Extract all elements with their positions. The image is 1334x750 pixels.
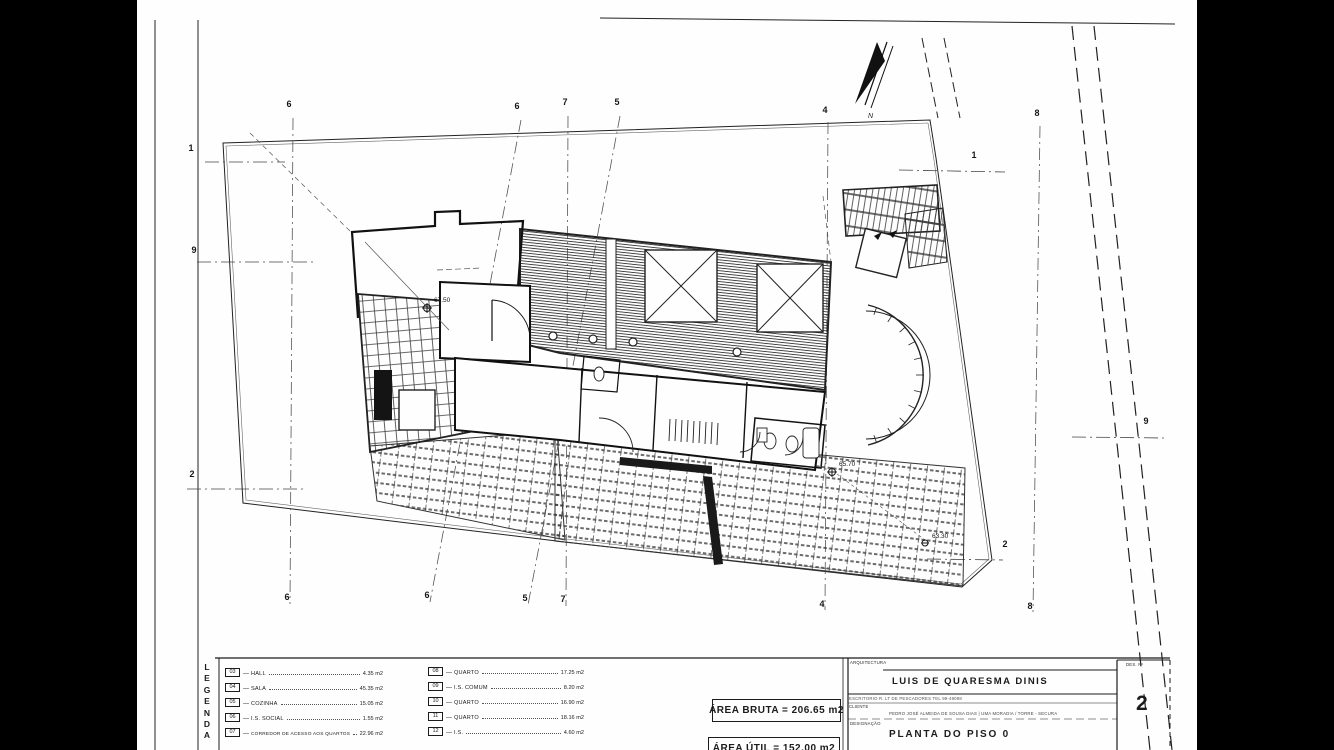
legend-leader (482, 672, 558, 674)
client-label: CLIENTE (849, 704, 869, 709)
drawing-label: DESIGNAÇÃO (850, 721, 881, 726)
legend-item: 05 — COZINHA 15.05 m2 (225, 698, 383, 708)
discipline-label: ARQUITECTURA (850, 660, 886, 665)
grid-marker-4: 4 (822, 105, 827, 115)
scanned-drawing-sheet: N (0, 0, 1334, 750)
level-marker-value: 63.30 (932, 533, 948, 540)
legend-title: L E G E N D A (199, 662, 215, 742)
grid-marker-2: 2 (1002, 539, 1007, 549)
grid-marker-8: 8 (1034, 108, 1039, 118)
legend-item: 11 — QUARTO 18.16 m2 (428, 712, 584, 722)
legend-item: 09 — I.S. COMUM 8.20 m2 (428, 682, 584, 692)
entry-court (843, 185, 947, 277)
north-label: N (868, 113, 874, 120)
legend-item-label: QUARTO (454, 670, 479, 676)
legend-separator: — (446, 715, 452, 721)
legend-item-label: HALL (251, 671, 266, 677)
office-line: ESCRITORIO R. LT DE PESCADORES TEL 99-49… (849, 696, 962, 701)
north-arrow-icon: N (855, 42, 893, 120)
legend-item-number: 12 (428, 727, 443, 736)
client-line: PEDRO JOSÉ ALMEIDA DE SOUSA DIAS | UMA M… (889, 711, 1057, 716)
grid-marker-9: 9 (191, 245, 196, 255)
legend-leader (269, 688, 357, 690)
legend-item-label: I.S. (454, 730, 463, 736)
legend-item-number: 09 (428, 682, 443, 691)
sheet-number: 2 (1136, 692, 1148, 716)
legend-leader (287, 718, 360, 720)
legend-leader (466, 732, 561, 734)
grid-marker-1: 1 (971, 150, 976, 160)
legend-item: 07 — CORREDOR DE ACESSO AOS QUARTOS 22.9… (225, 728, 383, 738)
legend-item-area: 18.16 m2 (561, 715, 584, 721)
legend-item: 12 — I.S. 4.60 m2 (428, 727, 584, 737)
grid-marker-2: 2 (189, 469, 194, 479)
legend-letter: A (199, 730, 215, 741)
legend-letter: D (199, 719, 215, 730)
drawing-title: PLANTA DO PISO 0 (889, 729, 1010, 740)
legend-item-label: COZINHA (251, 701, 278, 707)
legend-item-area: 4.60 m2 (564, 730, 584, 736)
legend-item-number: 03 (225, 668, 240, 677)
area-util-box: ÁREA ÚTIL = 152.00 m2 (708, 737, 840, 750)
legend-item-number: 08 (428, 667, 443, 676)
legend-letter: E (199, 673, 215, 684)
legend-item-label: I.S. SOCIAL (251, 716, 284, 722)
legend-letter: L (199, 662, 215, 673)
legend-leader (269, 673, 360, 675)
legend-item-label: I.S. COMUM (454, 685, 488, 691)
legend-item: 03 — HALL 4.35 m2 (225, 668, 383, 678)
legend-letter: N (199, 708, 215, 719)
legend-leader (482, 717, 558, 719)
grid-marker-5: 5 (522, 593, 527, 603)
legend-separator: — (243, 701, 249, 707)
legend-item-area: 4.35 m2 (363, 671, 383, 677)
grid-marker-7: 7 (560, 594, 565, 604)
legend-item-number: 06 (225, 713, 240, 722)
legend-leader (353, 733, 357, 735)
legend-separator: — (446, 700, 452, 706)
grid-marker-4: 4 (819, 599, 824, 609)
terrace-paving (370, 431, 965, 586)
legend-separator: — (243, 671, 249, 677)
road-lines (922, 26, 1172, 750)
legend-item-area: 8.20 m2 (564, 685, 584, 691)
grid-marker-5: 5 (614, 97, 619, 107)
legend-letter: G (199, 685, 215, 696)
grid-marker-1: 1 (188, 143, 193, 153)
legend-leader (482, 702, 558, 704)
legend-item-area: 15.05 m2 (360, 701, 383, 707)
legend-item-area: 45.35 m2 (360, 686, 383, 692)
grid-marker-9: 9 (1143, 416, 1148, 426)
legend-leader (281, 703, 357, 705)
legend-separator: — (243, 686, 249, 692)
legend-item-number: 04 (225, 683, 240, 692)
grid-marker-6: 6 (514, 101, 519, 111)
legend-item-area: 1.55 m2 (363, 716, 383, 722)
legend-separator: — (446, 670, 452, 676)
legend-item: 10 — QUARTO 16.90 m2 (428, 697, 584, 707)
legend-item-area: 22.96 m2 (360, 731, 383, 737)
legend-item-number: 11 (428, 712, 443, 721)
legend-item-area: 16.90 m2 (561, 700, 584, 706)
legend-letter: E (199, 696, 215, 707)
grid-marker-6: 6 (286, 99, 291, 109)
legend-item-label: CORREDOR DE ACESSO AOS QUARTOS (251, 732, 350, 737)
grid-marker-6: 6 (424, 590, 429, 600)
curved-wall (866, 305, 930, 445)
legend-separator: — (446, 730, 452, 736)
legend-item-label: SALA (251, 686, 266, 692)
legend-item-label: QUARTO (454, 715, 479, 721)
grid-marker-7: 7 (562, 97, 567, 107)
sheet-number-label: DES. Nº (1126, 662, 1143, 667)
level-marker-value: 65.70 (839, 461, 855, 468)
architect-name: LUIS DE QUARESMA DINIS (892, 676, 1048, 687)
legend-separator: — (243, 731, 249, 737)
legend-item-area: 17.25 m2 (561, 670, 584, 676)
grid-marker-8: 8 (1027, 601, 1032, 611)
level-marker-value: 67.50 (434, 297, 450, 304)
legend-item-number: 10 (428, 697, 443, 706)
legend-item-number: 05 (225, 698, 240, 707)
drawing-paper: N (137, 0, 1197, 750)
legend-item-number: 07 (225, 728, 240, 737)
legend-item-label: QUARTO (454, 700, 479, 706)
legend-leader (491, 687, 561, 689)
legend-separator: — (243, 716, 249, 722)
legend-item: 06 — I.S. SOCIAL 1.55 m2 (225, 713, 383, 723)
legend-item: 08 — QUARTO 17.25 m2 (428, 667, 584, 677)
grid-marker-6: 6 (284, 592, 289, 602)
legend-item: 04 — SALA 45.35 m2 (225, 683, 383, 693)
area-bruta-box: ÁREA BRUTA = 206.65 m2 (712, 699, 841, 722)
legend-separator: — (446, 685, 452, 691)
